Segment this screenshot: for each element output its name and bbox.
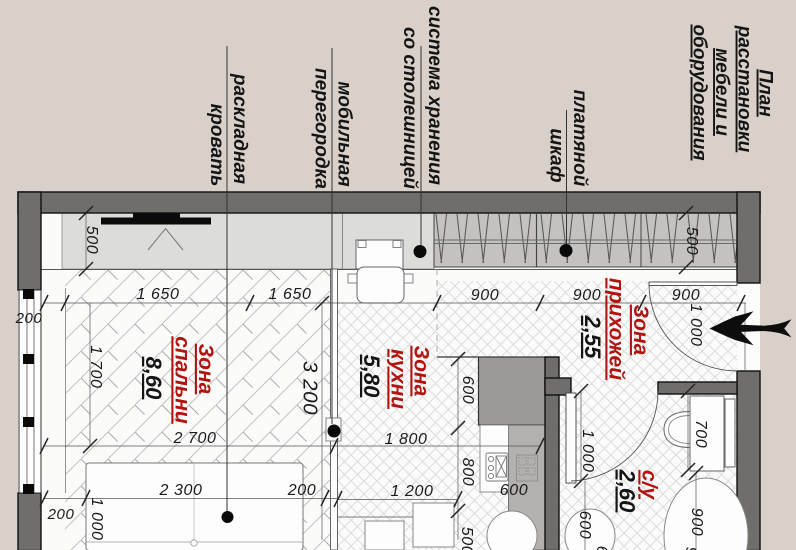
svg-text:600: 600: [593, 546, 610, 550]
svg-text:800: 800: [459, 458, 476, 487]
svg-text:кухни: кухни: [386, 349, 409, 409]
svg-text:500: 500: [458, 527, 475, 550]
svg-text:1 650: 1 650: [136, 286, 179, 303]
svg-text:200: 200: [15, 310, 43, 327]
svg-text:со столешницей: со столешницей: [399, 27, 420, 189]
svg-text:600: 600: [459, 376, 476, 405]
svg-text:2,55: 2,55: [580, 315, 605, 360]
svg-text:500: 500: [83, 226, 100, 255]
svg-text:1 000: 1 000: [88, 497, 105, 540]
svg-text:1 800: 1 800: [384, 431, 427, 448]
svg-text:1 000: 1 000: [687, 303, 704, 346]
svg-text:700: 700: [692, 420, 709, 449]
svg-text:2 700: 2 700: [172, 430, 216, 447]
svg-text:План: План: [754, 69, 775, 117]
svg-text:оборудования: оборудования: [688, 24, 709, 160]
svg-text:1 200: 1 200: [390, 483, 433, 500]
svg-text:кровать: кровать: [206, 104, 227, 187]
svg-text:с/у: с/у: [637, 470, 660, 501]
svg-text:Зона: Зона: [629, 305, 652, 356]
svg-text:2 300: 2 300: [158, 482, 202, 499]
svg-text:600: 600: [500, 482, 529, 499]
svg-text:платяной: платяной: [569, 90, 590, 187]
svg-text:900: 900: [688, 508, 705, 537]
svg-text:раскладная: раскладная: [229, 73, 250, 184]
svg-text:600: 600: [576, 511, 593, 540]
svg-text:система хранения: система хранения: [424, 6, 445, 185]
svg-text:прихожей: прихожей: [604, 278, 627, 380]
svg-text:мобильная: мобильная: [333, 81, 354, 186]
svg-text:200: 200: [47, 506, 75, 523]
svg-text:8,60: 8,60: [141, 357, 166, 401]
svg-text:Зона: Зона: [409, 346, 432, 397]
svg-text:перегородка: перегородка: [310, 68, 331, 189]
svg-text:Зона: Зона: [194, 344, 217, 395]
svg-text:3 200: 3 200: [299, 361, 322, 415]
svg-text:2,60: 2,60: [615, 469, 640, 514]
svg-text:шкаф: шкаф: [545, 128, 566, 182]
svg-text:900: 900: [471, 287, 500, 304]
svg-text:5,80: 5,80: [359, 355, 384, 399]
svg-text:900: 900: [672, 287, 701, 304]
svg-text:расстановки: расстановки: [733, 25, 754, 153]
svg-text:мебели и: мебели и: [711, 48, 732, 136]
svg-text:1 650: 1 650: [268, 286, 311, 303]
svg-text:500: 500: [683, 227, 700, 256]
svg-text:1 000: 1 000: [579, 429, 596, 472]
svg-text:900: 900: [573, 287, 602, 304]
svg-text:спальни: спальни: [170, 336, 193, 424]
svg-text:1 700: 1 700: [87, 345, 104, 388]
svg-text:200: 200: [287, 482, 317, 499]
